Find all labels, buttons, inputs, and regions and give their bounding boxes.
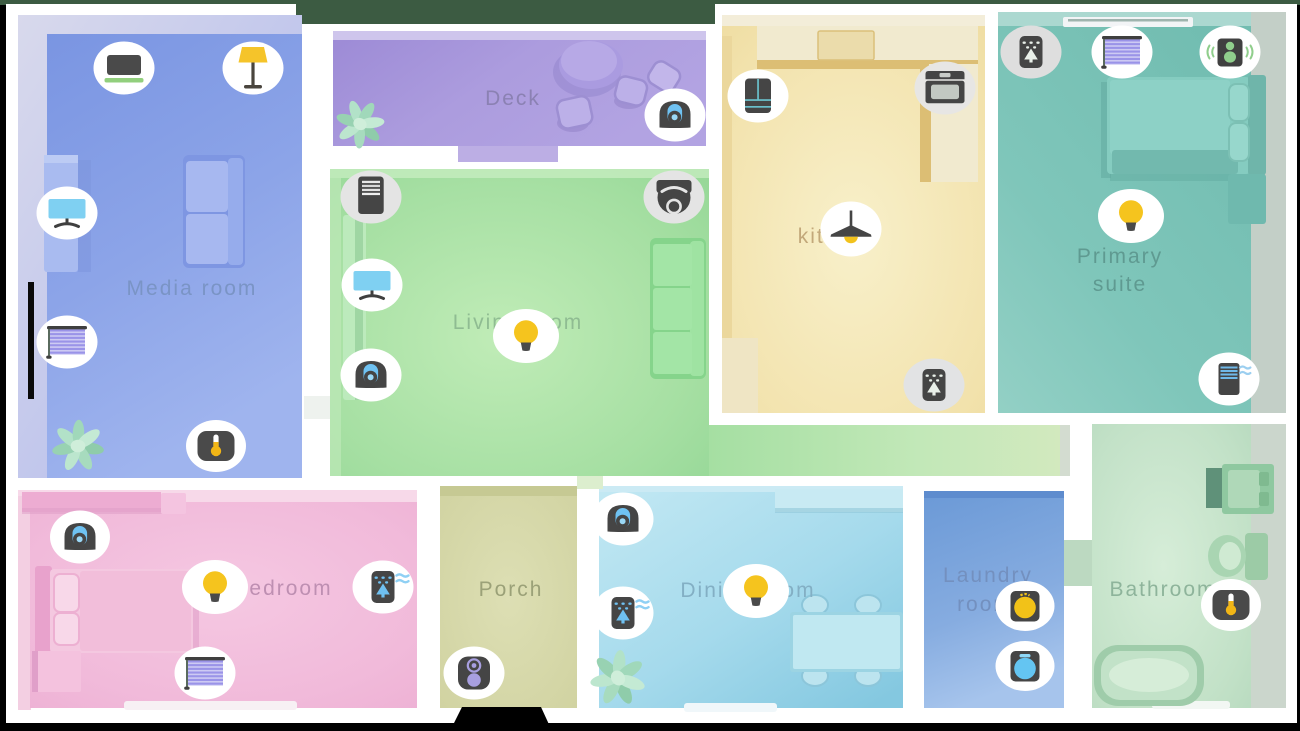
svg-text:Deck: Deck [485,87,541,110]
svg-text:Primary: Primary [1077,245,1163,268]
svg-text:Media room: Media room [127,277,258,300]
svg-text:Bedroom: Bedroom [233,577,332,600]
svg-text:suite: suite [1093,273,1147,296]
svg-text:Porch: Porch [479,578,544,601]
svg-text:Bathroom: Bathroom [1109,578,1216,601]
